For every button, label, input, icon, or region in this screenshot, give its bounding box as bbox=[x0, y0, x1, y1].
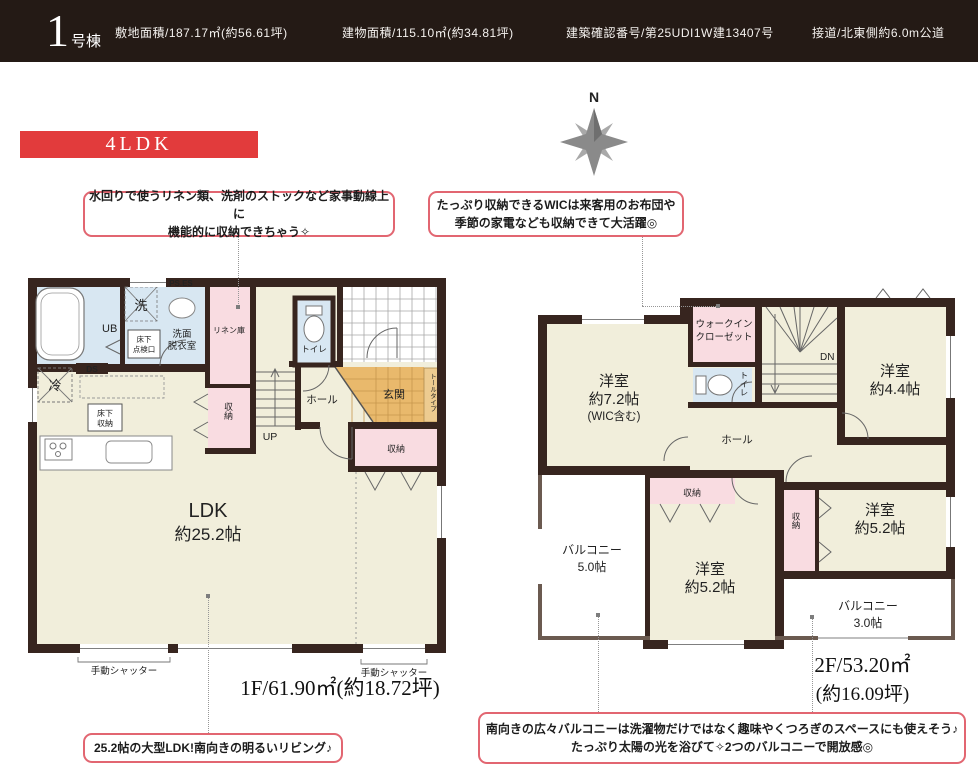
label-balc3-size: 3.0帖 bbox=[854, 615, 883, 630]
label-room44-size: 約4.4帖 bbox=[870, 381, 921, 398]
label-wic-1: ウォークイン bbox=[695, 319, 752, 330]
compass-north-label: N bbox=[589, 89, 599, 105]
label-room52c-size: 約5.2帖 bbox=[685, 579, 736, 596]
callout-wic: たっぷり収納できるWICは来客用のお布団や 季節の家電なども収納できて大活躍◎ bbox=[428, 191, 684, 237]
spec-confirmation-number: 建築確認番号/第25UDI1W建13407号 bbox=[566, 24, 774, 41]
label-closet-mid: 収納 bbox=[223, 401, 233, 421]
label-closet-center: 収納 bbox=[683, 487, 701, 498]
label-senmen-2: 脱衣室 bbox=[168, 340, 197, 352]
callout-wic-line2: 季節の家電なども収納できて大活躍◎ bbox=[455, 214, 657, 232]
spec-road-access: 接道/北東側約6.0m公道 bbox=[812, 24, 945, 41]
spec-land-area: 敷地面積/187.17㎡(約56.61坪) bbox=[115, 24, 288, 41]
label-wash: 洗 bbox=[134, 298, 147, 313]
label-toilet-1f: トイレ bbox=[301, 344, 327, 354]
label-ps-es: PS.ES bbox=[169, 279, 193, 288]
label-fridge: 冷 bbox=[48, 378, 61, 393]
callout-balcony-line2: たっぷり太陽の光を浴びて✧2つのバルコニーで開放感◎ bbox=[571, 738, 873, 756]
label-room72: 洋室 bbox=[599, 373, 629, 390]
callout-ldk-line1: 25.2帖の大型LDK!南向きの明るいリビング♪ bbox=[94, 739, 332, 757]
closet-right-2f bbox=[784, 490, 815, 571]
kitchen-sink-icon bbox=[106, 441, 152, 463]
label-genkan: 玄関 bbox=[383, 387, 405, 401]
floor1-plan: UB 洗 PS.ES 洗面 脱衣室 床下 点検口 リネン庫 トイレ 玄関 トール… bbox=[22, 276, 462, 678]
leader-ldk-dot bbox=[206, 594, 210, 598]
label-linen: リネン庫 bbox=[213, 325, 245, 335]
unit-number: 1 bbox=[46, 5, 69, 56]
compass-rose: N bbox=[548, 86, 640, 182]
label-room72-wic: (WIC含む) bbox=[587, 409, 640, 423]
label-room52r-size: 約5.2帖 bbox=[855, 520, 906, 537]
toilet-fixture-1f bbox=[304, 306, 324, 342]
callout-ldk: 25.2帖の大型LDK!南向きの明るいリビング♪ bbox=[83, 733, 343, 763]
leader-balcony3-dot bbox=[810, 615, 814, 619]
callout-balcony: 南向きの広々バルコニーは洗濯物だけではなく趣味やくつろぎのスペースにも使えそう♪… bbox=[478, 712, 966, 764]
callout-linen-line1: 水回りで使うリネン類、洗剤のストックなど家事動線上に bbox=[85, 187, 393, 223]
label-senmen-1: 洗面 bbox=[172, 328, 191, 340]
label-room52c: 洋室 bbox=[695, 561, 725, 578]
floor2-title: 2F/53.20㎡ (約16.09坪) bbox=[760, 649, 965, 706]
balcony-5 bbox=[538, 475, 650, 640]
floor1-title: 1F/61.90㎡(約18.72坪) bbox=[140, 672, 540, 702]
callout-balcony-line1: 南向きの広々バルコニーは洗濯物だけではなく趣味やくつろぎのスペースにも使えそう♪ bbox=[486, 720, 958, 738]
header-bar: 1号棟 敷地面積/187.17㎡(約56.61坪) 建物面積/115.10㎡(約… bbox=[0, 0, 978, 62]
floor2-title-line1: 2F/53.20㎡ bbox=[760, 649, 965, 679]
leader-wic-dot bbox=[716, 304, 720, 308]
label-ldk: LDK bbox=[189, 500, 229, 522]
label-balc3: バルコニー bbox=[838, 599, 898, 613]
toilet-fixture-2f bbox=[696, 375, 732, 395]
label-wic-2: クローゼット bbox=[695, 331, 752, 343]
label-up: UP bbox=[263, 431, 278, 443]
label-ub: UB bbox=[102, 323, 117, 335]
floor2-plan: 洋室 約7.2帖 (WIC含む) ウォークイン クローゼット トイレ DN 洋室… bbox=[528, 284, 964, 656]
kitchen-island bbox=[40, 436, 172, 470]
label-closet-right: 収納 bbox=[387, 443, 405, 454]
entrance-porch bbox=[340, 287, 437, 362]
label-closet-right-2f: 収納 bbox=[791, 511, 801, 530]
unit-title: 1号棟 bbox=[46, 6, 101, 56]
label-ldk-size: 約25.2帖 bbox=[174, 525, 241, 544]
label-tenken-2: 点検口 bbox=[133, 344, 156, 354]
label-balc5-size: 5.0帖 bbox=[578, 559, 607, 574]
callout-linen-line2: 機能的に収納できちゃう✧ bbox=[168, 223, 310, 241]
label-hall-1f: ホール bbox=[306, 394, 338, 406]
leader-wic-v bbox=[642, 233, 643, 306]
label-yukashita-2: 収納 bbox=[97, 418, 113, 428]
label-dn: DN bbox=[820, 352, 834, 363]
label-tenken-1: 床下 bbox=[137, 334, 152, 344]
leader-balcony5 bbox=[598, 616, 599, 712]
leader-linen-dot bbox=[236, 305, 240, 309]
label-yukashita-1: 床下 bbox=[97, 408, 113, 418]
label-balc5: バルコニー bbox=[562, 543, 622, 557]
leader-wic-h bbox=[642, 306, 716, 307]
label-room52r: 洋室 bbox=[865, 502, 895, 519]
label-ds: DS bbox=[86, 364, 98, 374]
shutter-brackets bbox=[78, 657, 427, 664]
flyer-page: 1号棟 敷地面積/187.17㎡(約56.61坪) 建物面積/115.10㎡(約… bbox=[0, 0, 978, 768]
floor2-title-line2: (約16.09坪) bbox=[760, 679, 965, 706]
callout-wic-line1: たっぷり収納できるWICは来客用のお布団や bbox=[436, 196, 675, 214]
bathtub-fixture bbox=[36, 288, 84, 360]
layout-badge: 4LDK bbox=[20, 131, 258, 158]
label-toilet-2f: トイレ bbox=[739, 371, 749, 397]
callout-linen: 水回りで使うリネン類、洗剤のストックなど家事動線上に 機能的に収納できちゃう✧ bbox=[83, 191, 395, 237]
sink-fixture bbox=[169, 298, 195, 318]
leader-ldk bbox=[208, 597, 209, 733]
label-hall-2f: ホール bbox=[721, 434, 753, 446]
label-room44: 洋室 bbox=[880, 363, 910, 380]
label-room72-size: 約7.2帖 bbox=[589, 391, 640, 408]
leader-linen bbox=[238, 233, 239, 306]
spec-building-area: 建物面積/115.10㎡(約34.81坪) bbox=[342, 24, 514, 41]
leader-balcony5-dot bbox=[596, 613, 600, 617]
unit-suffix: 号棟 bbox=[71, 34, 101, 50]
